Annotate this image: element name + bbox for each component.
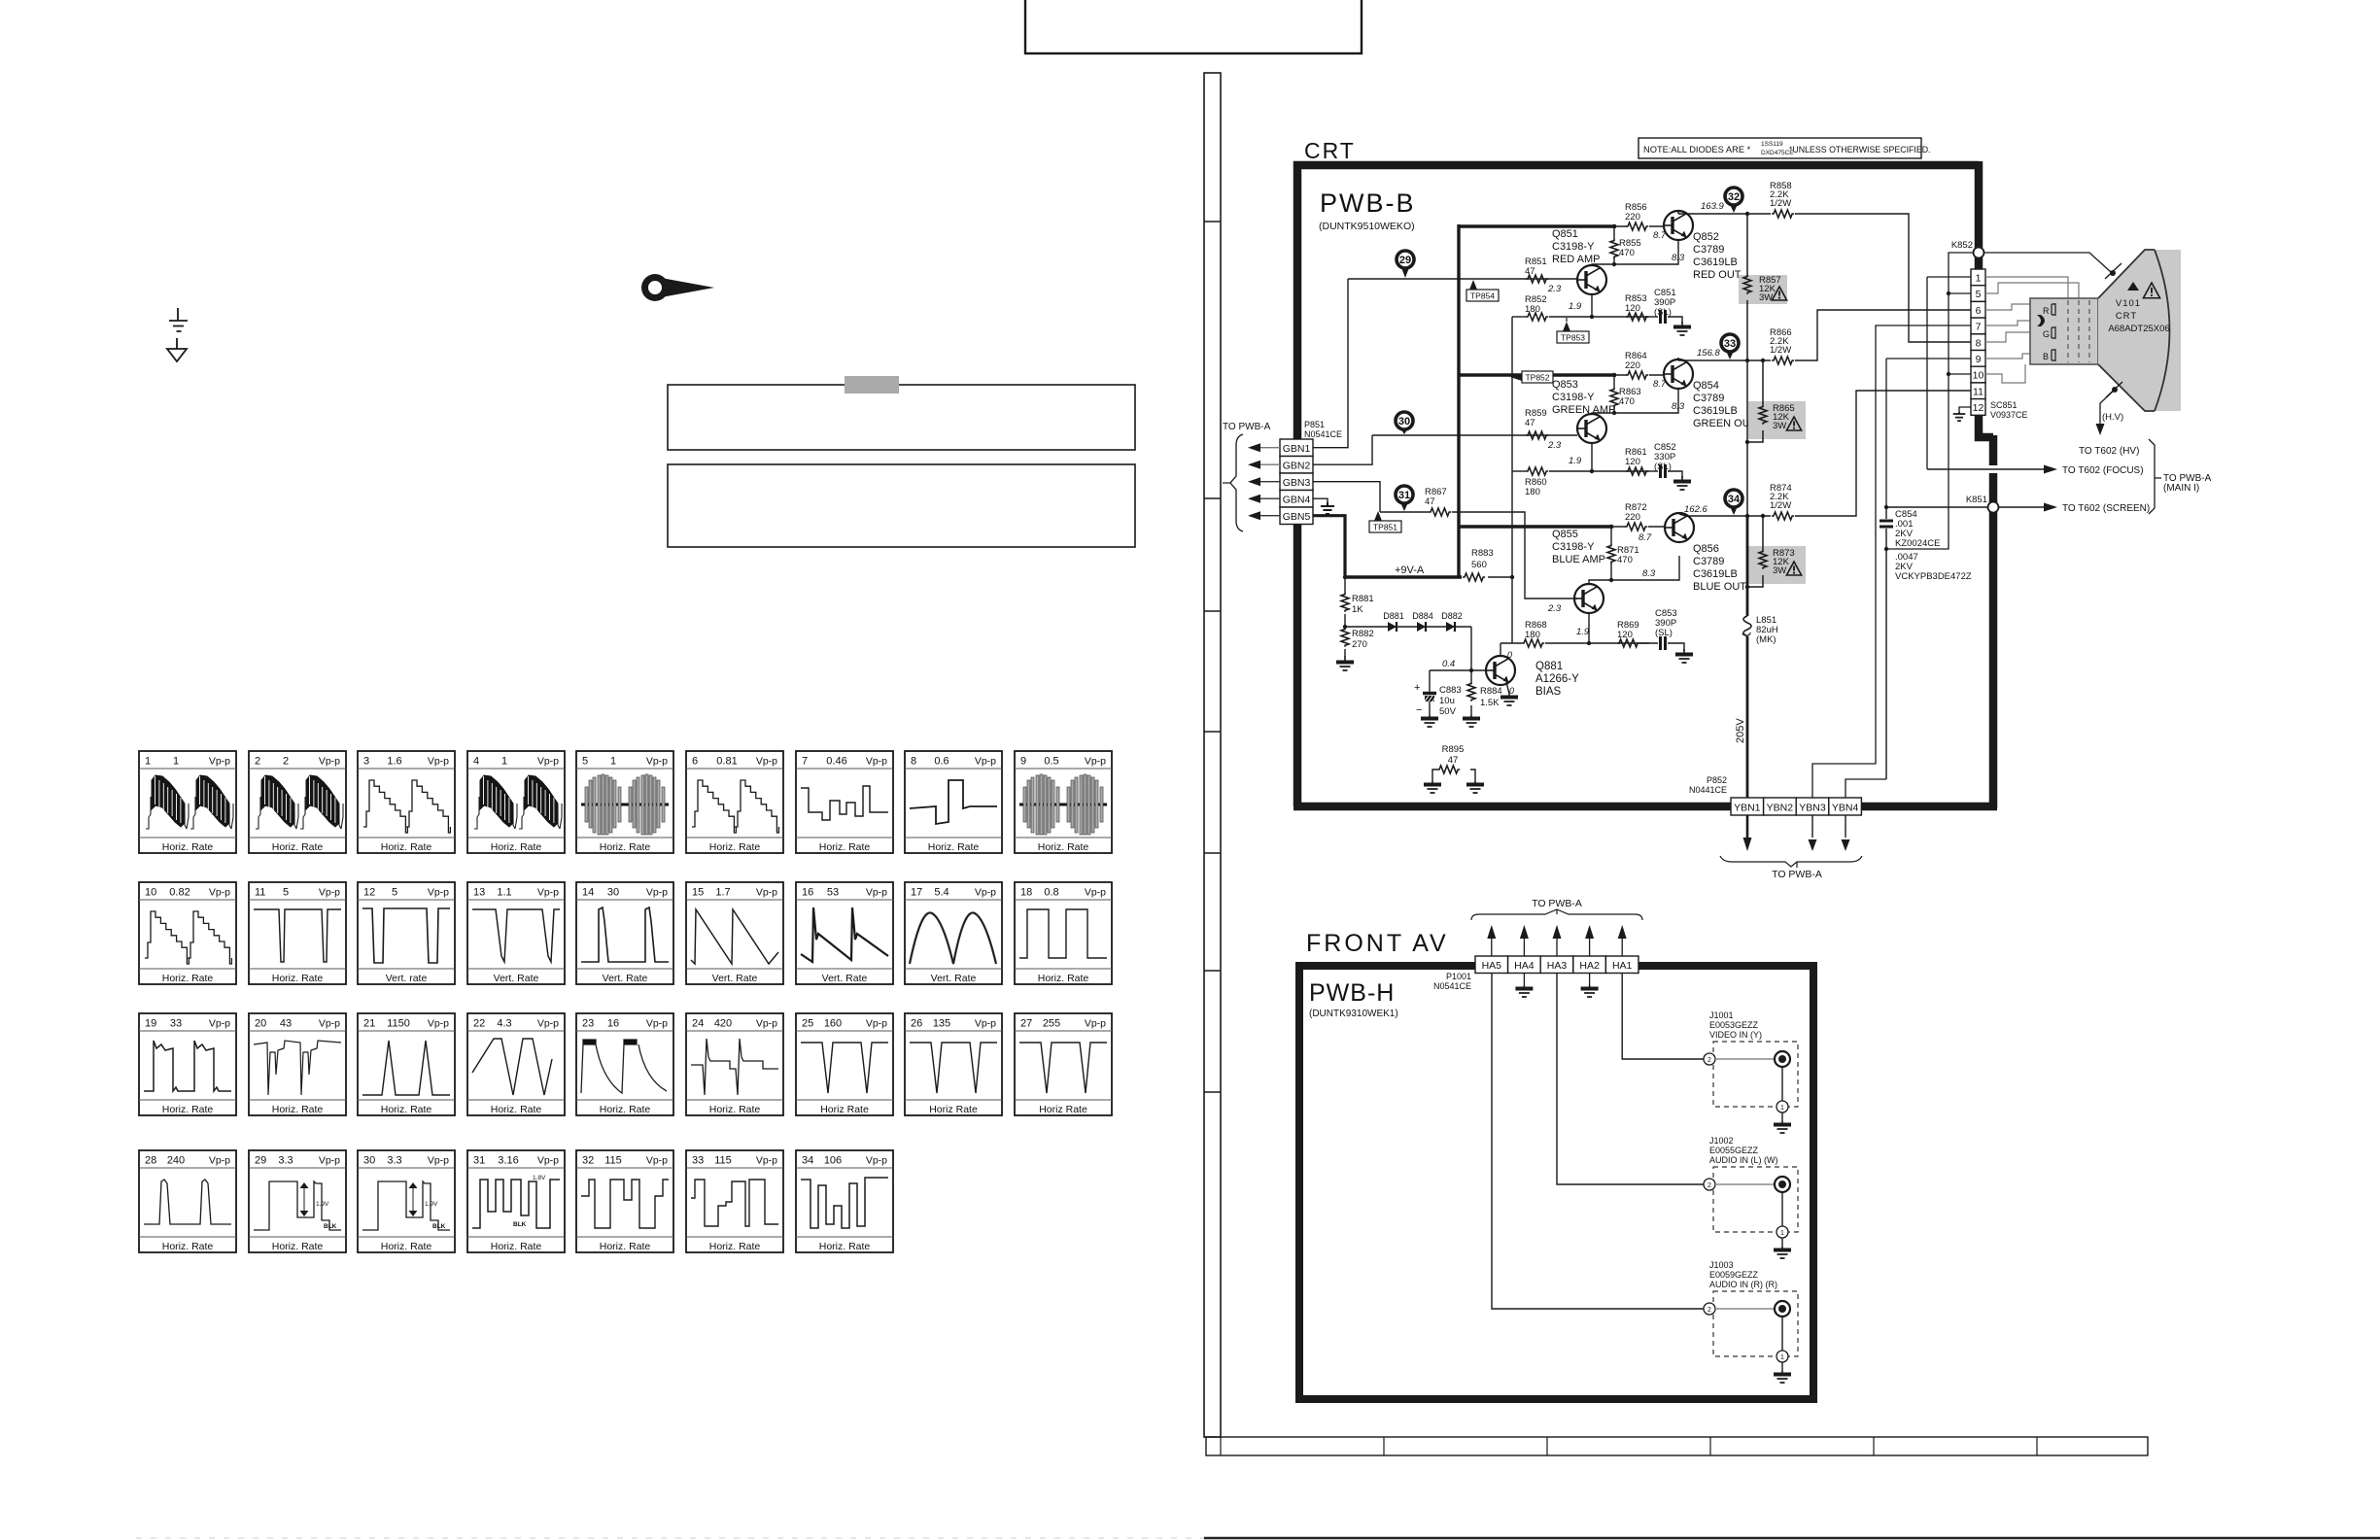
svg-text:1: 1 [145,756,151,768]
svg-text:(H.V): (H.V) [2102,412,2123,423]
svg-text:CRT: CRT [1304,138,1356,163]
svg-text:220: 220 [1625,212,1640,222]
svg-text:17: 17 [911,887,922,899]
svg-text:2.3: 2.3 [1547,284,1562,294]
svg-text:Horiz. Rate: Horiz. Rate [272,1104,324,1115]
svg-text:9: 9 [1976,354,1982,365]
svg-text:BLK: BLK [324,1223,337,1230]
svg-text:1.9V: 1.9V [425,1201,438,1208]
svg-text:Vp-p: Vp-p [646,887,668,899]
svg-text:TO T602 (FOCUS): TO T602 (FOCUS) [2062,465,2144,476]
svg-text:163.9: 163.9 [1701,201,1724,212]
svg-text:Vp-p: Vp-p [428,1155,449,1167]
svg-text:Horiz. Rate: Horiz. Rate [162,1241,214,1252]
svg-text:0.82: 0.82 [169,887,190,899]
svg-text:1.9: 1.9 [1576,627,1590,637]
svg-text:+: + [1414,682,1420,694]
svg-text:R881: R881 [1352,594,1374,604]
svg-text:Vert. Rate: Vert. Rate [822,973,868,984]
svg-text:26: 26 [911,1018,922,1030]
svg-text:7: 7 [802,756,808,768]
svg-text:GBN2: GBN2 [1283,461,1311,472]
svg-text:3.3: 3.3 [387,1155,401,1167]
svg-text:115: 115 [604,1155,622,1167]
svg-text:Vp-p: Vp-p [756,1155,777,1167]
svg-text:20: 20 [255,1018,266,1030]
svg-text:255: 255 [1043,1018,1060,1030]
svg-text:6: 6 [692,756,698,768]
svg-text:18: 18 [1020,887,1032,899]
svg-text:C3789: C3789 [1693,244,1724,256]
svg-text:Horiz. Rate: Horiz. Rate [819,841,871,853]
svg-text:TP852: TP852 [1525,373,1549,383]
svg-text:1: 1 [1976,273,1982,285]
svg-text:0.6: 0.6 [934,756,949,768]
svg-text:BIAS: BIAS [1535,686,1562,698]
svg-text:16: 16 [802,887,813,899]
svg-text:Q852: Q852 [1693,231,1719,243]
svg-text:43: 43 [280,1018,292,1030]
svg-text:5: 5 [582,756,588,768]
svg-text:8: 8 [911,756,916,768]
svg-text:Q854: Q854 [1693,380,1719,392]
svg-text:SC851: SC851 [1990,400,2018,410]
svg-text:2: 2 [1707,1307,1711,1314]
svg-text:0.5: 0.5 [1044,756,1058,768]
svg-text:(DUNTK9310WEK1): (DUNTK9310WEK1) [1309,1009,1398,1019]
svg-text:5: 5 [283,887,289,899]
svg-text:Vp-p: Vp-p [537,756,559,768]
svg-text:11: 11 [1973,386,1983,397]
svg-text:Vp-p: Vp-p [537,1018,559,1030]
svg-text:HA2: HA2 [1579,960,1600,972]
svg-text:−: − [1416,704,1422,716]
svg-text:240: 240 [167,1155,185,1167]
svg-text:1/2W: 1/2W [1770,345,1791,356]
svg-text:GBN3: GBN3 [1283,477,1311,489]
svg-text:8.7: 8.7 [1638,532,1652,543]
svg-text:10: 10 [1973,370,1984,382]
svg-text:23: 23 [582,1018,594,1030]
svg-text:Horiz. Rate: Horiz. Rate [272,841,324,853]
svg-text:Vp-p: Vp-p [209,756,230,768]
svg-text:Vp-p: Vp-p [646,1155,668,1167]
svg-text:AUDIO IN (R) (R): AUDIO IN (R) (R) [1709,1280,1777,1289]
svg-text:Horiz. Rate: Horiz. Rate [162,1104,214,1115]
svg-text:C3198-Y: C3198-Y [1552,392,1595,403]
svg-text:V101: V101 [2116,298,2141,309]
svg-text:HA5: HA5 [1482,960,1502,972]
svg-text:Q853: Q853 [1552,379,1578,391]
svg-text:Q855: Q855 [1552,529,1578,540]
svg-text:G: G [2043,329,2050,339]
svg-text:27: 27 [1020,1018,1032,1030]
svg-text:Vp-p: Vp-p [866,756,887,768]
svg-text:Horiz. Rate: Horiz. Rate [381,1104,432,1115]
svg-text:TO T602 (SCREEN): TO T602 (SCREEN) [2062,503,2150,514]
svg-text:C3619LB: C3619LB [1693,568,1738,580]
svg-text:3W: 3W [1773,421,1786,431]
svg-text:YBN3: YBN3 [1799,803,1826,814]
svg-text:115: 115 [714,1155,732,1167]
svg-text:YBN2: YBN2 [1767,803,1794,814]
svg-text:5: 5 [1976,289,1982,300]
svg-text:YBN1: YBN1 [1734,803,1761,814]
svg-text:Horiz. Rate: Horiz. Rate [928,841,980,853]
svg-text:C3789: C3789 [1693,393,1724,404]
svg-text:P852: P852 [1707,775,1727,785]
svg-text:1.5K: 1.5K [1480,698,1500,708]
svg-text:8: 8 [1976,337,1982,349]
svg-text:470: 470 [1619,396,1635,407]
svg-text:1.9V: 1.9V [316,1201,329,1208]
svg-text:Vp-p: Vp-p [209,1155,230,1167]
svg-text:C3619LB: C3619LB [1693,405,1738,417]
svg-text:*UNLESS OTHERWISE SPECIFIED.: *UNLESS OTHERWISE SPECIFIED. [1789,145,1931,154]
svg-text:Vp-p: Vp-p [1085,756,1106,768]
svg-text:1.6: 1.6 [387,756,401,768]
svg-text:1.1: 1.1 [497,887,511,899]
svg-text:FRONT AV: FRONT AV [1306,930,1449,957]
svg-text:Vp-p: Vp-p [975,1018,996,1030]
svg-text:8.3: 8.3 [1642,568,1656,579]
svg-text:12: 12 [363,887,375,899]
svg-text:PWB-H: PWB-H [1309,979,1395,1007]
svg-text:9: 9 [1020,756,1026,768]
svg-text:6: 6 [1976,305,1982,317]
svg-text:Q881: Q881 [1535,661,1563,672]
svg-text:(MAIN I): (MAIN I) [2163,483,2199,494]
svg-text:Horiz. Rate: Horiz. Rate [709,841,761,853]
svg-text:120: 120 [1617,630,1633,640]
svg-text:Vert. Rate: Vert. Rate [931,973,977,984]
svg-text:2.3: 2.3 [1547,440,1562,451]
svg-text:47: 47 [1525,418,1535,428]
svg-text:(MK): (MK) [1756,634,1776,645]
svg-text:1.9: 1.9 [1569,301,1582,312]
svg-text:N0441CE: N0441CE [1689,785,1727,795]
svg-text:A68ADT25X06: A68ADT25X06 [2108,324,2169,334]
svg-text:220: 220 [1625,512,1640,523]
svg-text:Vp-p: Vp-p [866,1018,887,1030]
svg-text:Horiz. Rate: Horiz. Rate [162,973,214,984]
svg-text:1: 1 [1780,1354,1784,1361]
svg-text:J1001: J1001 [1709,1010,1734,1020]
svg-text:24: 24 [692,1018,704,1030]
svg-text:TO PWB-A: TO PWB-A [1772,869,1822,880]
svg-text:Horiz. Rate: Horiz. Rate [381,1241,432,1252]
svg-text:(SL): (SL) [1655,628,1673,638]
svg-text:560: 560 [1471,560,1487,570]
svg-text:+9V-A: +9V-A [1395,565,1425,576]
svg-text:NOTE:ALL DIODES ARE *: NOTE:ALL DIODES ARE * [1643,145,1751,154]
svg-text:156.8: 156.8 [1697,348,1720,359]
svg-text:3.16: 3.16 [498,1155,518,1167]
svg-text:Vp-p: Vp-p [756,887,777,899]
svg-text:Vp-p: Vp-p [975,756,996,768]
svg-text:0.46: 0.46 [826,756,846,768]
svg-text:Vp-p: Vp-p [319,887,340,899]
svg-text:16: 16 [607,1018,619,1030]
svg-text:C883: C883 [1439,685,1462,696]
svg-text:Vp-p: Vp-p [646,756,668,768]
svg-text:Vp-p: Vp-p [756,1018,777,1030]
svg-text:TO T602 (HV): TO T602 (HV) [2079,446,2139,457]
svg-text:1SS119: 1SS119 [1761,141,1783,148]
svg-text:TP851: TP851 [1373,523,1397,532]
svg-text:N0541CE: N0541CE [1433,981,1471,991]
svg-text:0.81: 0.81 [716,756,737,768]
svg-text:1: 1 [1780,1105,1784,1112]
svg-text:HA3: HA3 [1547,960,1568,972]
svg-text:VCKYPB3DE472Z: VCKYPB3DE472Z [1895,571,1972,582]
svg-text:CRT: CRT [2116,311,2137,322]
svg-text:Horiz. Rate: Horiz. Rate [819,1241,871,1252]
svg-text:BLUE OUT: BLUE OUT [1693,581,1746,593]
svg-text:BLK: BLK [432,1223,446,1230]
svg-text:120: 120 [1625,457,1640,467]
svg-text:Vert. Rate: Vert. Rate [603,973,648,984]
svg-text:Vp-p: Vp-p [756,756,777,768]
svg-text:Horiz. Rate: Horiz. Rate [272,1241,324,1252]
svg-text:32: 32 [582,1155,594,1167]
svg-text:D881: D881 [1383,611,1404,621]
svg-text:50V: 50V [1439,706,1457,717]
svg-text:R895: R895 [1442,744,1465,755]
svg-text:1: 1 [501,756,507,768]
svg-text:3: 3 [363,756,369,768]
svg-text:1/2W: 1/2W [1770,500,1791,511]
svg-text:106: 106 [824,1155,842,1167]
svg-text:Vp-p: Vp-p [866,1155,887,1167]
svg-text:Q851: Q851 [1552,228,1578,240]
svg-text:Horiz. Rate: Horiz. Rate [600,841,651,853]
svg-text:C3619LB: C3619LB [1693,257,1738,268]
svg-text:160: 160 [824,1018,842,1030]
svg-text:33: 33 [1724,338,1736,350]
svg-text:Horiz. Rate: Horiz. Rate [1038,973,1089,984]
svg-text:11: 11 [255,887,265,899]
svg-text:53: 53 [827,887,839,899]
svg-text:19: 19 [145,1018,156,1030]
svg-text:3W: 3W [1773,565,1786,576]
svg-text:30: 30 [363,1155,375,1167]
svg-text:AUDIO IN (L) (W): AUDIO IN (L) (W) [1709,1155,1778,1165]
svg-text:A1266-Y: A1266-Y [1535,673,1579,685]
svg-text:V0937CE: V0937CE [1990,410,2028,420]
svg-text:E0055GEZZ: E0055GEZZ [1709,1146,1759,1155]
svg-text:470: 470 [1619,248,1635,258]
svg-text:12: 12 [1973,402,1984,414]
svg-text:Vp-p: Vp-p [319,1018,340,1030]
svg-text:180: 180 [1525,487,1540,497]
svg-text:0.8: 0.8 [1044,887,1058,899]
svg-text:Horiz. Rate: Horiz. Rate [272,973,324,984]
svg-text:5: 5 [392,887,397,899]
svg-text:Vp-p: Vp-p [428,887,449,899]
svg-text:1: 1 [173,756,179,768]
svg-text:2: 2 [1707,1057,1711,1064]
svg-text:Horiz. Rate: Horiz. Rate [709,1241,761,1252]
svg-text:13: 13 [473,887,485,899]
svg-text:Vp-p: Vp-p [428,756,449,768]
svg-text:8.3: 8.3 [1672,253,1685,263]
svg-text:E0059GEZZ: E0059GEZZ [1709,1270,1759,1280]
svg-text:C3198-Y: C3198-Y [1552,541,1595,553]
svg-text:2: 2 [1707,1182,1711,1189]
svg-text:GBN4: GBN4 [1283,495,1311,506]
svg-text:Q856: Q856 [1693,543,1719,555]
svg-text:Vp-p: Vp-p [1085,887,1106,899]
svg-text:30: 30 [1398,416,1410,428]
svg-text:1.7: 1.7 [715,887,730,899]
svg-text:TP853: TP853 [1561,333,1585,343]
svg-text:220: 220 [1625,360,1640,371]
svg-text:34: 34 [802,1155,813,1167]
svg-text:33: 33 [170,1018,182,1030]
svg-text:TO PWB-A: TO PWB-A [1223,422,1271,432]
svg-text:1K: 1K [1352,604,1363,615]
svg-text:32: 32 [1728,191,1740,203]
svg-text:Horiz. Rate: Horiz. Rate [709,1104,761,1115]
svg-text:Vert. Rate: Vert. Rate [494,973,539,984]
svg-text:PWB-B: PWB-B [1320,188,1416,218]
svg-text:120: 120 [1625,303,1640,314]
svg-text:Vert. rate: Vert. rate [386,973,428,984]
svg-text:1150: 1150 [387,1018,410,1030]
svg-text:VIDEO IN (Y): VIDEO IN (Y) [1709,1030,1762,1040]
svg-text:47: 47 [1448,755,1459,766]
svg-text:R: R [2043,306,2050,316]
svg-text:470: 470 [1617,555,1633,565]
svg-text:K851: K851 [1966,495,1987,505]
svg-text:B: B [2043,352,2049,361]
svg-text:2: 2 [283,756,289,768]
svg-text:3.3: 3.3 [278,1155,293,1167]
svg-text:Horiz. Rate: Horiz. Rate [491,1104,542,1115]
svg-text:420: 420 [714,1018,732,1030]
svg-text:Horiz Rate: Horiz Rate [820,1104,869,1115]
svg-text:Vp-p: Vp-p [428,1018,449,1030]
svg-text:29: 29 [1399,255,1411,266]
svg-text:P851: P851 [1304,420,1325,429]
svg-text:Horiz. Rate: Horiz. Rate [491,1241,542,1252]
svg-text:Horiz Rate: Horiz Rate [1039,1104,1087,1115]
svg-text:BLUE AMP: BLUE AMP [1552,554,1605,565]
svg-text:4: 4 [473,756,479,768]
svg-text:10u: 10u [1439,696,1455,706]
svg-text:Horiz. Rate: Horiz. Rate [491,841,542,853]
svg-text:TP854: TP854 [1470,291,1495,301]
svg-text:15: 15 [692,887,704,899]
svg-text:22: 22 [473,1018,485,1030]
svg-text:D882: D882 [1441,611,1463,621]
svg-text:RED OUT: RED OUT [1693,269,1742,281]
svg-text:Horiz. Rate: Horiz. Rate [1038,841,1089,853]
svg-text:Horiz. Rate: Horiz. Rate [381,841,432,853]
svg-text:Vert. Rate: Vert. Rate [712,973,758,984]
svg-text:29: 29 [255,1155,266,1167]
svg-text:HA4: HA4 [1514,960,1535,972]
svg-text:Vp-p: Vp-p [537,1155,559,1167]
svg-text:162.6: 162.6 [1684,504,1707,515]
svg-text:R884: R884 [1480,686,1502,697]
svg-text:YBN4: YBN4 [1832,803,1859,814]
svg-text:4.3: 4.3 [497,1018,511,1030]
svg-text:Vp-p: Vp-p [646,1018,668,1030]
svg-text:28: 28 [145,1155,156,1167]
svg-text:Horiz. Rate: Horiz. Rate [600,1104,651,1115]
svg-text:14: 14 [582,887,594,899]
svg-text:E0053GEZZ: E0053GEZZ [1709,1020,1759,1030]
svg-text:Horiz. Rate: Horiz. Rate [600,1241,651,1252]
svg-text:R882: R882 [1352,629,1374,639]
svg-text:Vp-p: Vp-p [537,887,559,899]
svg-text:30: 30 [607,887,619,899]
svg-text:205V: 205V [1735,718,1746,743]
svg-text:1: 1 [610,756,616,768]
svg-text:31: 31 [473,1155,485,1167]
svg-text:GBN1: GBN1 [1283,443,1311,455]
svg-text:Vp-p: Vp-p [209,1018,230,1030]
svg-text:34: 34 [1728,494,1741,505]
svg-text:J1003: J1003 [1709,1260,1734,1270]
svg-text:D884: D884 [1412,611,1433,621]
svg-text:33: 33 [692,1155,704,1167]
svg-text:0.4: 0.4 [1442,659,1455,669]
svg-text:3W: 3W [1759,292,1773,303]
svg-text:2: 2 [255,756,260,768]
svg-text:1.8V: 1.8V [533,1175,546,1181]
svg-text:Horiz. Rate: Horiz. Rate [162,841,214,853]
svg-text:P1001: P1001 [1446,972,1471,981]
svg-text:TO PWB-A: TO PWB-A [1532,898,1582,909]
svg-text:1.9: 1.9 [1569,456,1582,466]
svg-text:Vp-p: Vp-p [1085,1018,1106,1030]
svg-text:Vp-p: Vp-p [319,1155,340,1167]
svg-text:HA1: HA1 [1612,960,1633,972]
svg-text:R883: R883 [1471,548,1494,559]
svg-text:7: 7 [1976,322,1982,333]
svg-text:25: 25 [802,1018,813,1030]
svg-text:GREEN AMP: GREEN AMP [1552,404,1615,416]
svg-text:KZ0024CE: KZ0024CE [1895,538,1940,549]
svg-text:5.4: 5.4 [934,887,949,899]
svg-text:GBN5: GBN5 [1283,511,1311,523]
svg-text:1: 1 [1780,1230,1784,1237]
svg-text:10: 10 [145,887,156,899]
svg-text:0: 0 [1507,650,1512,660]
svg-text:2.3: 2.3 [1547,603,1562,614]
svg-text:8.3: 8.3 [1672,401,1685,412]
svg-text:RED AMP: RED AMP [1552,254,1601,265]
svg-text:N0541CE: N0541CE [1304,429,1342,439]
svg-text:K852: K852 [1951,240,1973,251]
svg-text:C3198-Y: C3198-Y [1552,241,1595,253]
svg-text:Vp-p: Vp-p [866,887,887,899]
svg-text:BLK: BLK [513,1221,527,1228]
svg-text:Horiz Rate: Horiz Rate [929,1104,978,1115]
svg-text:47: 47 [1425,496,1435,507]
svg-text:(DUNTK9510WEKO): (DUNTK9510WEKO) [1319,221,1415,232]
svg-text:270: 270 [1352,639,1367,650]
svg-text:Vp-p: Vp-p [209,887,230,899]
svg-text:1/2W: 1/2W [1770,198,1791,209]
svg-text:J1002: J1002 [1709,1136,1734,1146]
svg-text:135: 135 [933,1018,950,1030]
svg-text:31: 31 [1398,490,1410,501]
svg-text:C3789: C3789 [1693,556,1724,567]
